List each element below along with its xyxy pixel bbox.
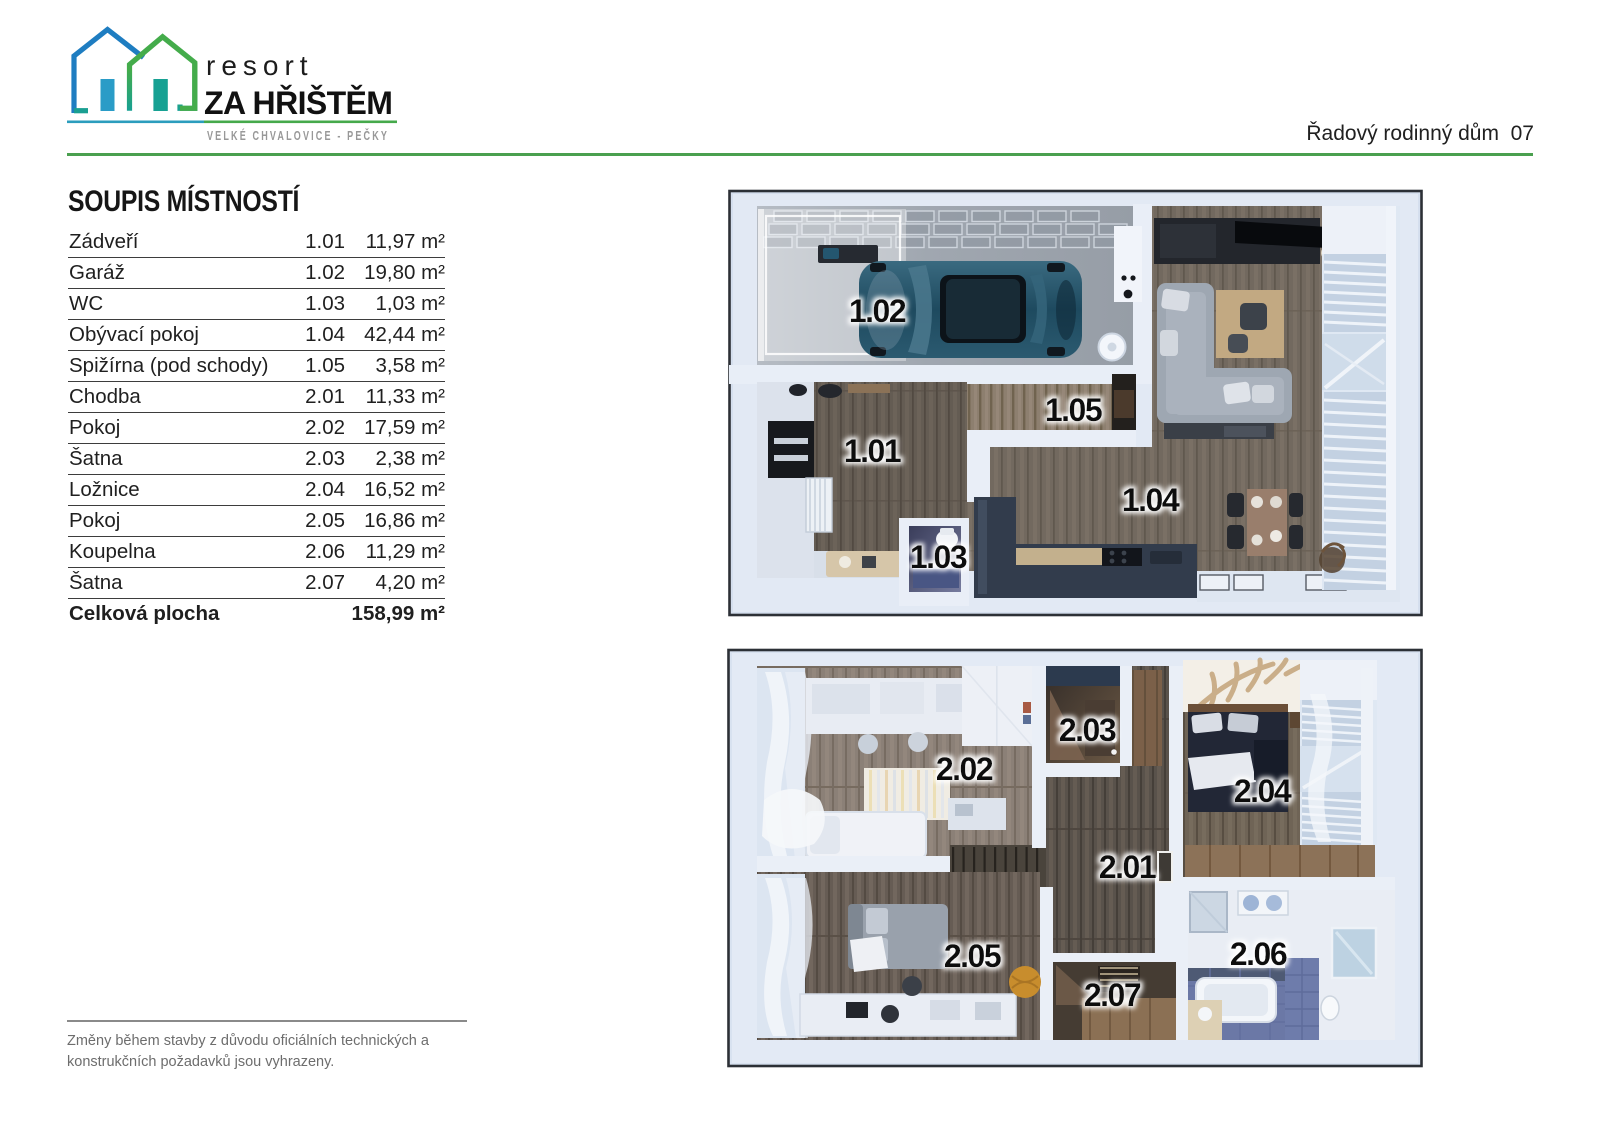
svg-text:1.04: 1.04 <box>1122 482 1180 518</box>
svg-text:2.07: 2.07 <box>1084 977 1141 1013</box>
svg-text:1.01: 1.01 <box>844 433 901 469</box>
svg-text:2.04: 2.04 <box>1234 773 1292 809</box>
svg-text:1.03: 1.03 <box>910 539 967 575</box>
svg-text:1.02: 1.02 <box>849 293 906 329</box>
svg-text:2.02: 2.02 <box>936 751 993 787</box>
svg-text:2.03: 2.03 <box>1059 712 1116 748</box>
svg-text:2.05: 2.05 <box>944 938 1001 974</box>
svg-text:1.05: 1.05 <box>1045 392 1102 428</box>
svg-text:2.06: 2.06 <box>1230 936 1287 972</box>
svg-text:2.01: 2.01 <box>1099 849 1156 885</box>
